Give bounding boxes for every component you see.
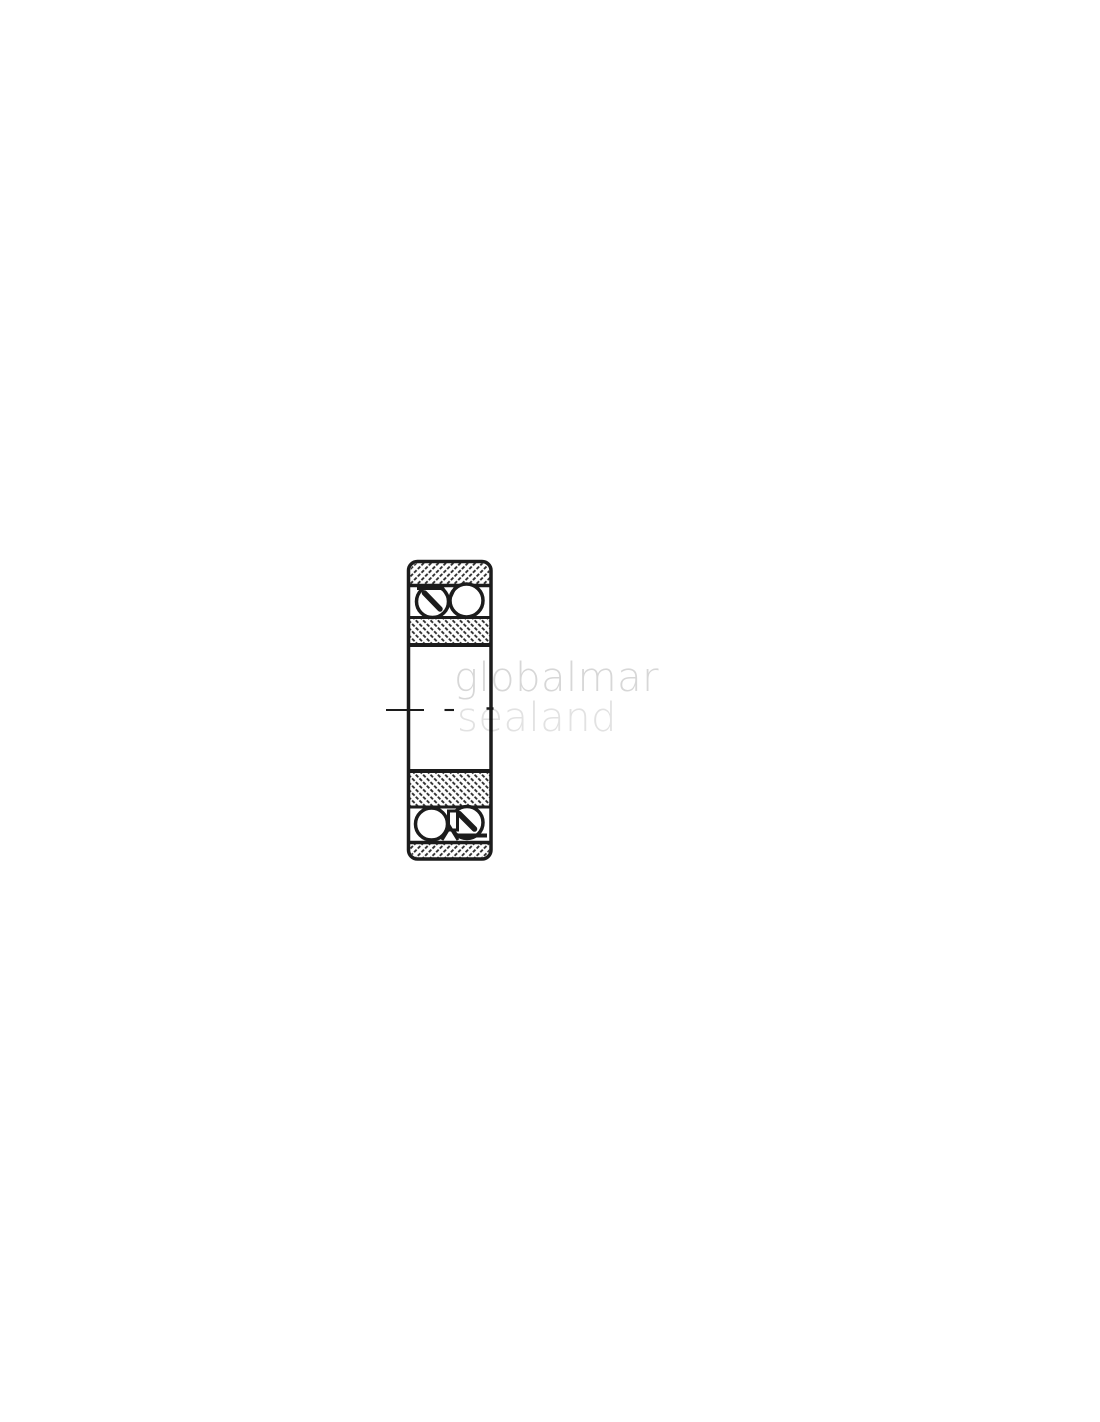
page-background: globalmar sealand (0, 0, 1100, 1422)
inner-ring-bottom-hatch (410, 772, 490, 806)
outer-ring-bottom-hatch (410, 843, 490, 858)
bearing-cross-section-drawing (0, 0, 1100, 1422)
outer-ring-top-hatch (410, 563, 490, 585)
inner-ring-top-hatch (410, 618, 490, 644)
ball-bottom-left (416, 808, 448, 840)
